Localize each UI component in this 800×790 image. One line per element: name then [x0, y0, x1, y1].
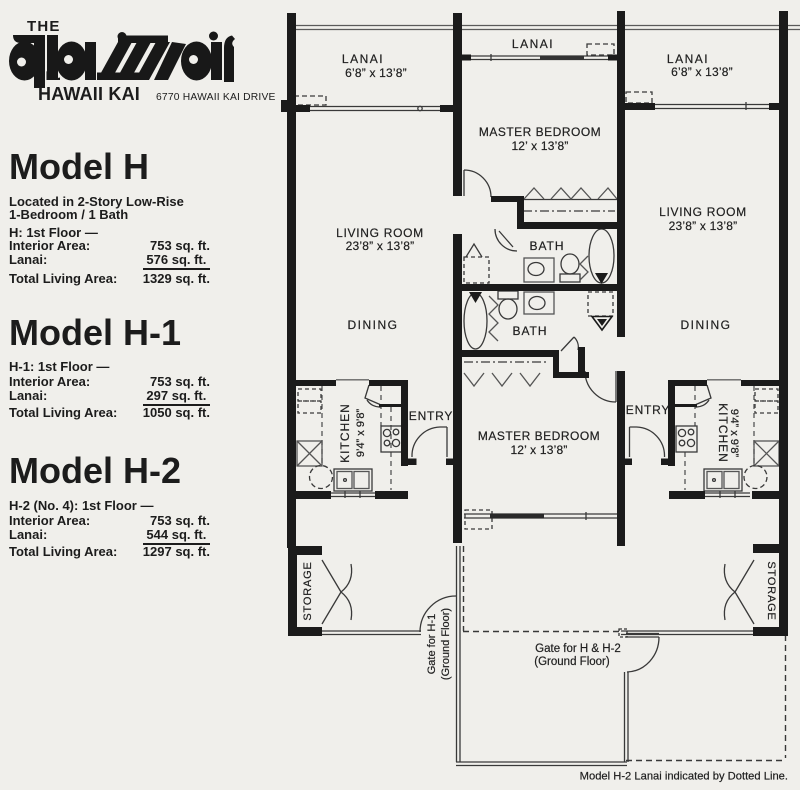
svg-text:12’ x 13’8”: 12’ x 13’8”: [511, 139, 568, 153]
svg-text:LANAI: LANAI: [342, 52, 384, 66]
svg-text:9’4” x 9’8”: 9’4” x 9’8”: [728, 409, 740, 458]
svg-text:LANAI: LANAI: [512, 37, 554, 51]
svg-text:MASTER BEDROOM: MASTER BEDROOM: [479, 125, 601, 139]
svg-text:STORAGE: STORAGE: [765, 561, 777, 620]
svg-text:23’8” x 13’8”: 23’8” x 13’8”: [346, 239, 415, 253]
svg-text:LIVING ROOM: LIVING ROOM: [659, 205, 747, 219]
svg-text:Model H-2 Lanai indicated by D: Model H-2 Lanai indicated by Dotted Line…: [580, 771, 788, 783]
svg-text:Gate for H-1: Gate for H-1: [426, 614, 438, 675]
svg-text:KITCHEN: KITCHEN: [338, 403, 352, 463]
svg-text:BATH: BATH: [529, 239, 564, 253]
svg-text:LIVING ROOM: LIVING ROOM: [336, 226, 424, 240]
svg-text:MASTER BEDROOM: MASTER BEDROOM: [478, 429, 600, 443]
svg-text:DINING: DINING: [348, 318, 399, 332]
svg-text:STORAGE: STORAGE: [302, 561, 314, 620]
svg-text:Gate for H & H-2: Gate for H & H-2: [535, 643, 621, 655]
svg-text:KITCHEN: KITCHEN: [716, 403, 730, 463]
svg-text:(Ground Floor): (Ground Floor): [534, 656, 610, 668]
svg-text:12’ x 13’8”: 12’ x 13’8”: [510, 443, 567, 457]
svg-text:23’8” x 13’8”: 23’8” x 13’8”: [669, 219, 738, 233]
svg-text:ENTRY: ENTRY: [626, 403, 670, 417]
svg-text:BATH: BATH: [512, 324, 547, 338]
svg-text:LANAI: LANAI: [667, 52, 709, 66]
svg-text:6’8” x 13’8”: 6’8” x 13’8”: [671, 65, 733, 79]
svg-text:ENTRY: ENTRY: [409, 409, 453, 423]
svg-text:(Ground Floor): (Ground Floor): [440, 608, 452, 680]
svg-text:9’4” x 9’8”: 9’4” x 9’8”: [355, 409, 367, 458]
svg-text:6’8” x 13’8”: 6’8” x 13’8”: [345, 66, 407, 80]
svg-text:DINING: DINING: [681, 318, 732, 332]
